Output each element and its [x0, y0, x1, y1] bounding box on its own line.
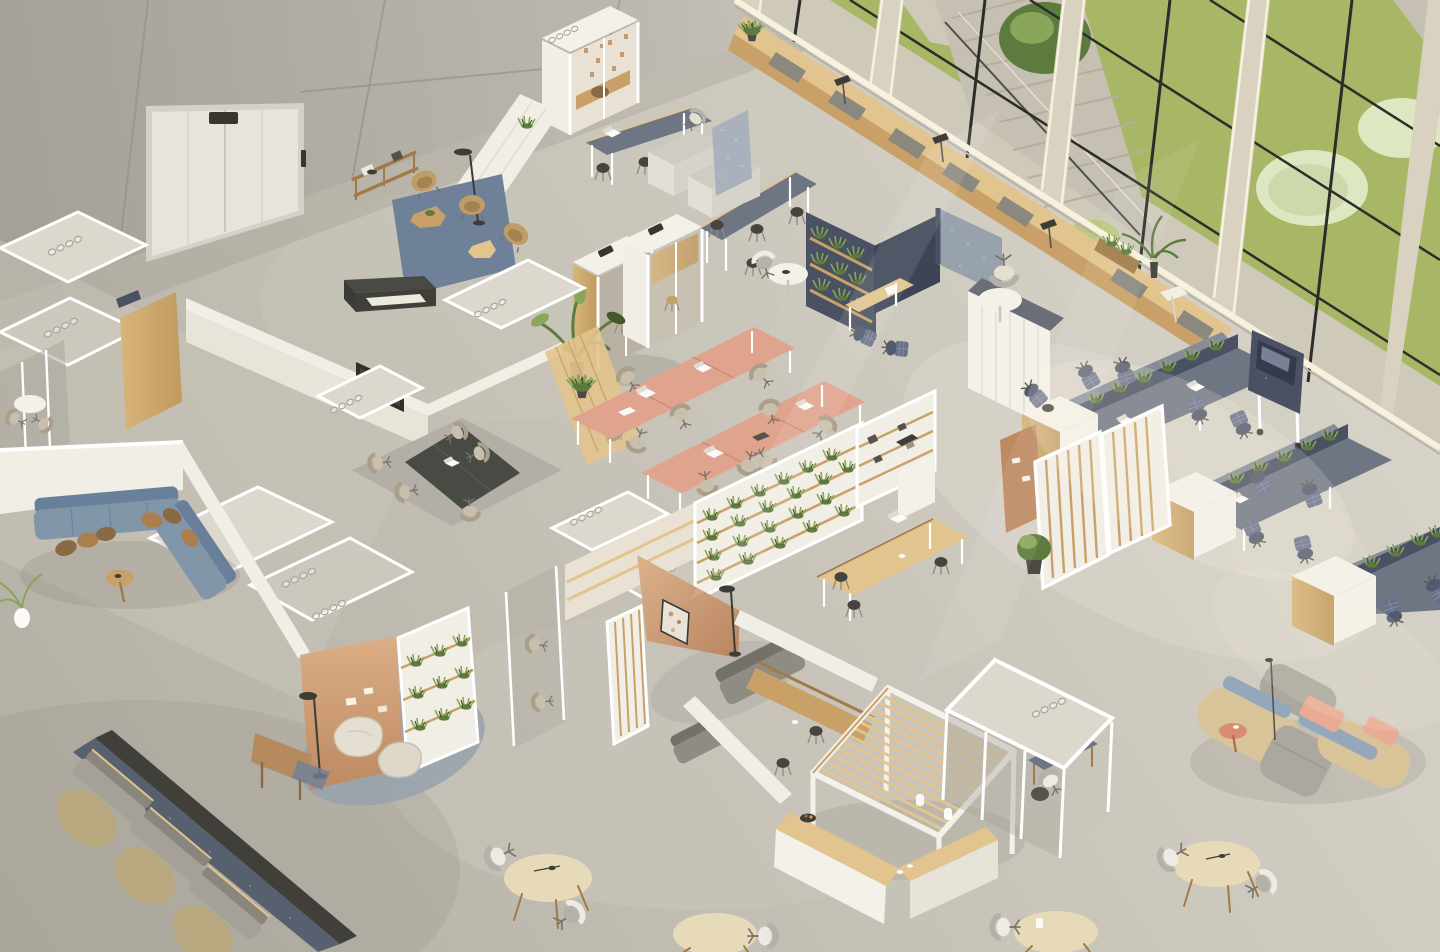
office-render: [0, 0, 1440, 952]
scene-canvas: [0, 0, 1440, 952]
elevator-sign: [209, 112, 238, 124]
elevator-call-panel: [301, 150, 306, 167]
sideboard: [344, 276, 436, 312]
cafe-table: [1014, 911, 1098, 952]
slat-door: [607, 606, 648, 744]
